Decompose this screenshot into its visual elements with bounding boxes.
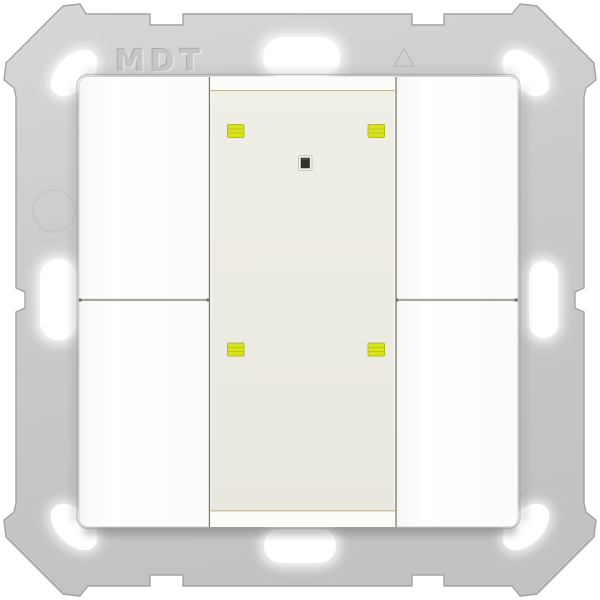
center-sensor <box>299 156 313 171</box>
right-button-column <box>395 77 518 528</box>
center-panel-bottom-bevel <box>210 511 397 527</box>
center-panel-face <box>210 91 397 512</box>
hole-left <box>40 259 77 340</box>
center-panel <box>210 77 397 528</box>
push-button-device: MDT MDT MDT <box>0 0 600 600</box>
product-photo-stage: MDT MDT MDT <box>0 0 600 600</box>
button-bottom-left[interactable] <box>79 301 209 527</box>
left-button-column <box>79 77 210 528</box>
center-panel-top-bevel <box>210 77 397 91</box>
seam-end-dot <box>515 299 518 302</box>
button-plate <box>79 77 518 528</box>
led-top-right <box>368 125 385 138</box>
seam-end-dot <box>79 299 82 302</box>
led-top-left <box>228 125 245 138</box>
button-bottom-right[interactable] <box>397 301 519 527</box>
led-bottom-left <box>228 343 245 356</box>
button-top-right[interactable] <box>397 77 519 300</box>
hole-right <box>529 261 558 338</box>
button-top-left[interactable] <box>79 77 209 300</box>
led-bottom-right <box>368 343 385 356</box>
